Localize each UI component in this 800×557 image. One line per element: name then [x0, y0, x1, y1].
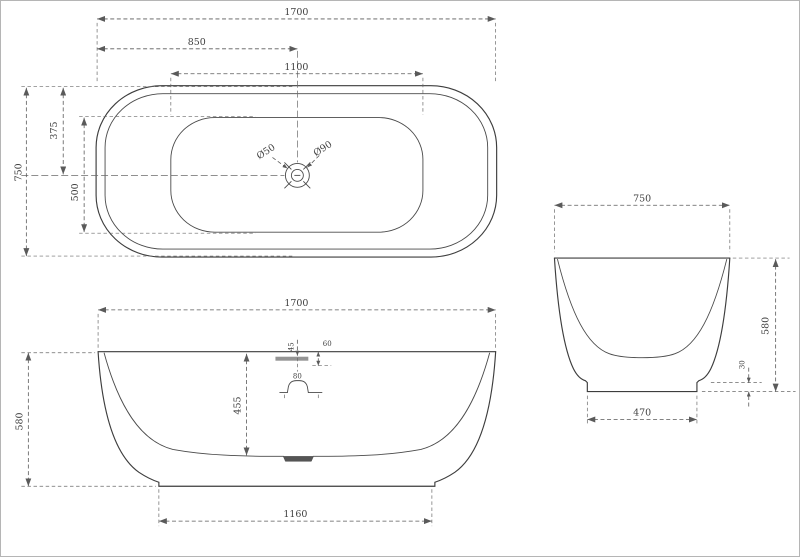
base-length-label: 1160	[283, 509, 307, 520]
basin-length-label: 1100	[284, 62, 308, 73]
front-drain-recess	[283, 456, 313, 461]
rim-to-overflow-label: 60	[323, 340, 332, 348]
side-height-label: 580	[761, 317, 772, 335]
side-view: 750 580 30 470	[554, 193, 795, 424]
drain-boss-profile	[279, 381, 322, 393]
side-interior-line	[557, 259, 726, 358]
top-overall-length-label: 1700	[284, 7, 308, 18]
side-base-width-label: 470	[633, 408, 651, 419]
top-view-outer-rim-outline	[96, 86, 497, 257]
front-view: 80 45 60 455 1700 580 1160	[14, 298, 495, 526]
basin-width-label: 500	[70, 183, 81, 201]
top-view-basin-outline	[171, 118, 423, 233]
drawing-sheet: Ø50 Ø90 1700 850 1100 750 375 500	[0, 0, 800, 557]
drawing-canvas: Ø50 Ø90 1700 850 1100 750 375 500	[1, 1, 799, 556]
drain-center-y-label: 375	[49, 122, 60, 140]
side-width-label: 750	[633, 193, 651, 204]
overflow-offset-label: 45	[287, 342, 295, 351]
drain-center-x-label: 850	[188, 37, 206, 48]
top-view-inner-rim-outline	[105, 94, 488, 249]
top-view: Ø50 Ø90 1700 850 1100 750 375 500	[13, 7, 496, 257]
front-overall-length-label: 1700	[284, 298, 308, 309]
front-height-label: 580	[14, 412, 25, 430]
interior-depth-label: 455	[233, 397, 244, 415]
foot-height-label: 30	[739, 360, 747, 369]
drain-diameter-large-label: Ø90	[312, 139, 335, 159]
front-interior-bottom-line	[104, 353, 490, 461]
drain-boss-width-label: 80	[293, 373, 302, 381]
overflow-slot	[275, 357, 308, 361]
top-overall-width-label: 750	[13, 163, 24, 181]
